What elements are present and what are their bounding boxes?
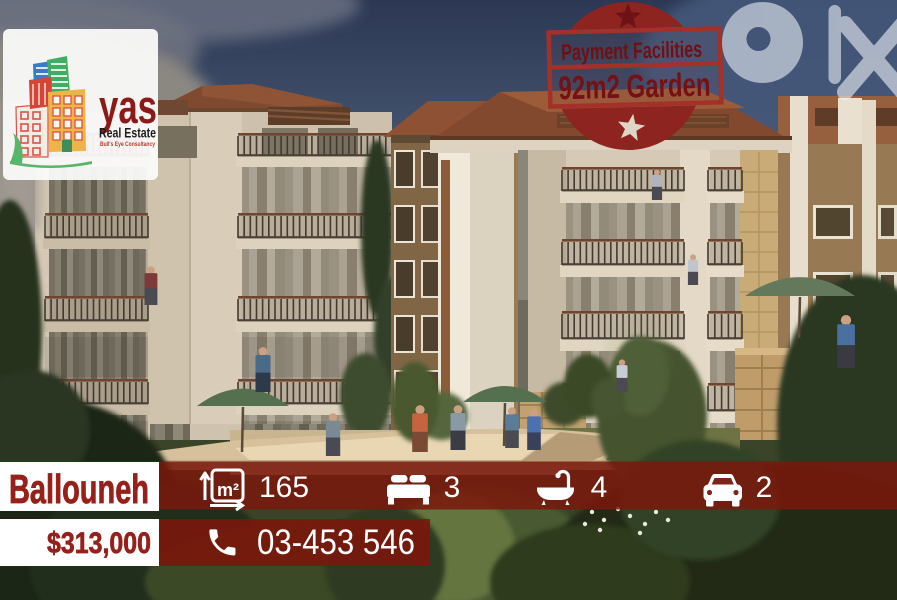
svg-text:Real Estate: Real Estate: [99, 125, 156, 141]
svg-text:3: 3: [444, 471, 461, 504]
svg-text:$313,000: $313,000: [47, 527, 151, 560]
svg-text:m²: m²: [217, 480, 239, 500]
svg-text:Payment Facilities: Payment Facilities: [561, 36, 703, 65]
svg-text:Bull's Eye Consultancy: Bull's Eye Consultancy: [100, 141, 155, 148]
svg-text:03-453 546: 03-453 546: [257, 523, 415, 562]
svg-text:92m2 Garden: 92m2 Garden: [558, 66, 711, 107]
svg-text:4: 4: [591, 471, 608, 504]
svg-text:Ballouneh: Ballouneh: [9, 466, 149, 512]
svg-text:2: 2: [756, 471, 773, 504]
svg-text:165: 165: [259, 471, 309, 504]
